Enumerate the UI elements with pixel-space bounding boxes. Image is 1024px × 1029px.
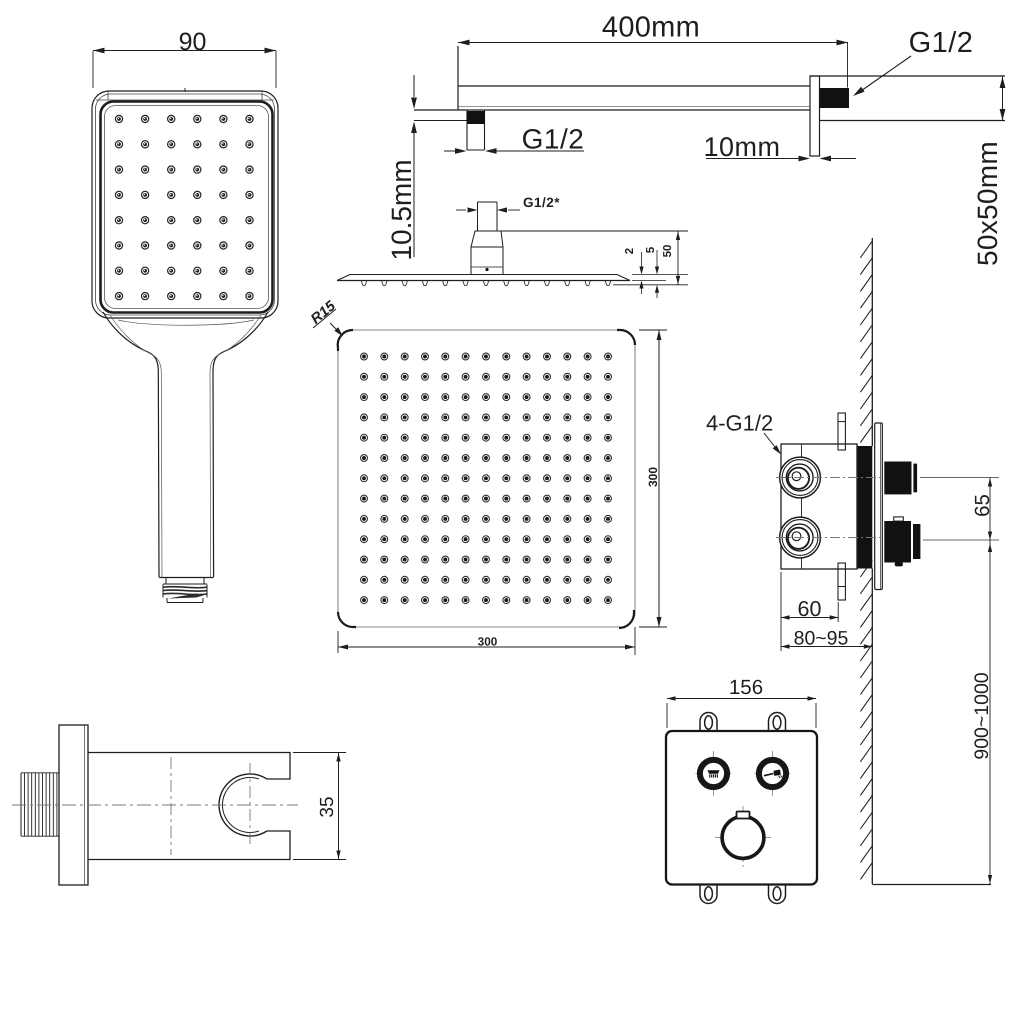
svg-text:10.5mm: 10.5mm xyxy=(386,159,417,260)
svg-text:G1/2: G1/2 xyxy=(909,27,974,59)
svg-text:90: 90 xyxy=(179,28,207,56)
svg-text:2: 2 xyxy=(624,248,636,254)
svg-text:50x50mm: 50x50mm xyxy=(972,141,1003,266)
svg-text:G1/2*: G1/2* xyxy=(523,195,560,210)
svg-text:300: 300 xyxy=(478,635,498,649)
svg-text:60: 60 xyxy=(798,597,822,621)
svg-text:80~95: 80~95 xyxy=(794,628,849,650)
svg-text:5: 5 xyxy=(645,246,657,253)
svg-text:300: 300 xyxy=(646,467,660,487)
svg-text:G1/2: G1/2 xyxy=(522,124,585,155)
svg-text:35: 35 xyxy=(317,796,338,817)
svg-text:50: 50 xyxy=(662,245,674,258)
svg-text:156: 156 xyxy=(729,676,763,699)
svg-text:900~1000: 900~1000 xyxy=(971,672,993,759)
svg-text:65: 65 xyxy=(971,494,994,517)
svg-text:10mm: 10mm xyxy=(703,132,780,162)
svg-text:4-G1/2: 4-G1/2 xyxy=(706,411,773,436)
svg-text:400mm: 400mm xyxy=(602,12,700,44)
